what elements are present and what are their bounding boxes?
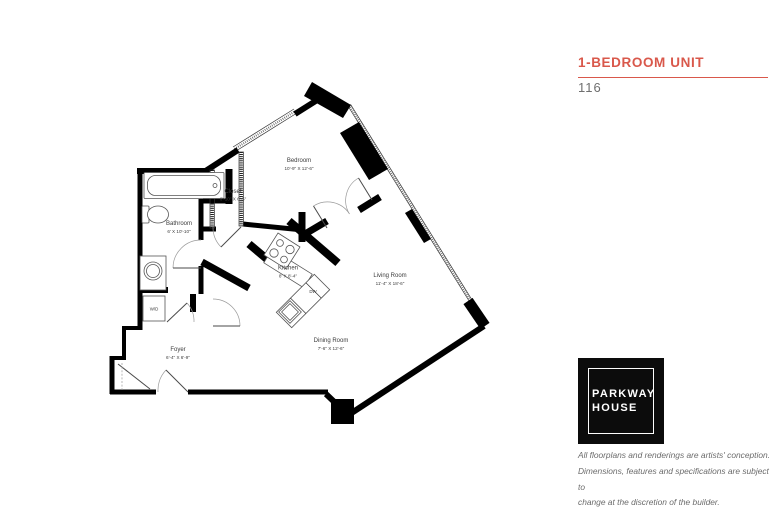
closet-door-leaf xyxy=(221,227,241,247)
bedroom-french-door-arc-right xyxy=(346,178,359,214)
wd-door-leaf xyxy=(167,303,187,322)
entry-door-arc xyxy=(158,370,166,392)
room-label-dining-room: Dining Room xyxy=(314,338,349,344)
room-dims-bathroom: 6' X 10'-10" xyxy=(167,229,191,234)
room-dims-closet: 6'-10" X 6'-5" xyxy=(220,197,247,202)
room-label-foyer: Foyer xyxy=(170,347,185,353)
room-label-closet: Closet xyxy=(224,189,241,195)
toilet xyxy=(142,206,169,223)
entry-closet-door-leaf xyxy=(118,364,150,389)
disclaimer: All floorplans and renderings are artist… xyxy=(578,448,778,511)
disclaimer-line3: change at the discretion of the builder. xyxy=(578,495,778,511)
logo-text: PARKWAY HOUSE xyxy=(592,387,656,415)
room-dims-foyer: 6'-4" X 6'-9" xyxy=(166,355,190,360)
floorplan-drawing: Bedroom 10'-9" X 12'-6" Closet 6'-10" X … xyxy=(100,60,530,440)
bedroom-french-door-arc-left xyxy=(314,202,350,214)
washer-dryer-label: W/D xyxy=(150,307,159,312)
room-label-bathroom: Bathroom xyxy=(166,221,192,227)
disclaimer-line1: All floorplans and renderings are artist… xyxy=(578,448,778,464)
room-label-bedroom: Bedroom xyxy=(287,158,311,164)
room-label-kitchen: Kitchen xyxy=(278,266,298,272)
room-label-living-room: Living Room xyxy=(373,273,406,279)
disclaimer-line2: Dimensions, features and specifications … xyxy=(578,464,778,496)
bedroom-french-door-leaf-right xyxy=(359,178,373,200)
hall-door-arc xyxy=(213,299,240,326)
bathroom-vanity-sink xyxy=(140,256,166,290)
room-dims-dining-room: 7'-6" X 12'-6" xyxy=(318,346,345,351)
page-title: 1-BEDROOM UNIT xyxy=(578,55,768,78)
exterior-walls xyxy=(110,82,485,424)
floorplan-page: 1-BEDROOM UNIT 116 PARKWAY HOUSE All flo… xyxy=(0,0,780,517)
logo-line1: PARKWAY xyxy=(592,387,656,401)
bathtub xyxy=(144,173,224,199)
dishwasher-label: DW xyxy=(309,289,317,294)
bathroom-door-arc xyxy=(173,240,201,268)
logo-line2: HOUSE xyxy=(592,401,656,415)
room-dims-bedroom: 10'-9" X 12'-6" xyxy=(284,166,313,171)
unit-number: 116 xyxy=(578,80,602,95)
entry-door-leaf xyxy=(166,370,188,392)
room-dims-kitchen: 8' X 8'-4" xyxy=(279,274,298,279)
room-dims-living-room: 11'-4" X 18'-6" xyxy=(376,281,405,286)
parkway-house-logo: PARKWAY HOUSE xyxy=(578,358,664,444)
